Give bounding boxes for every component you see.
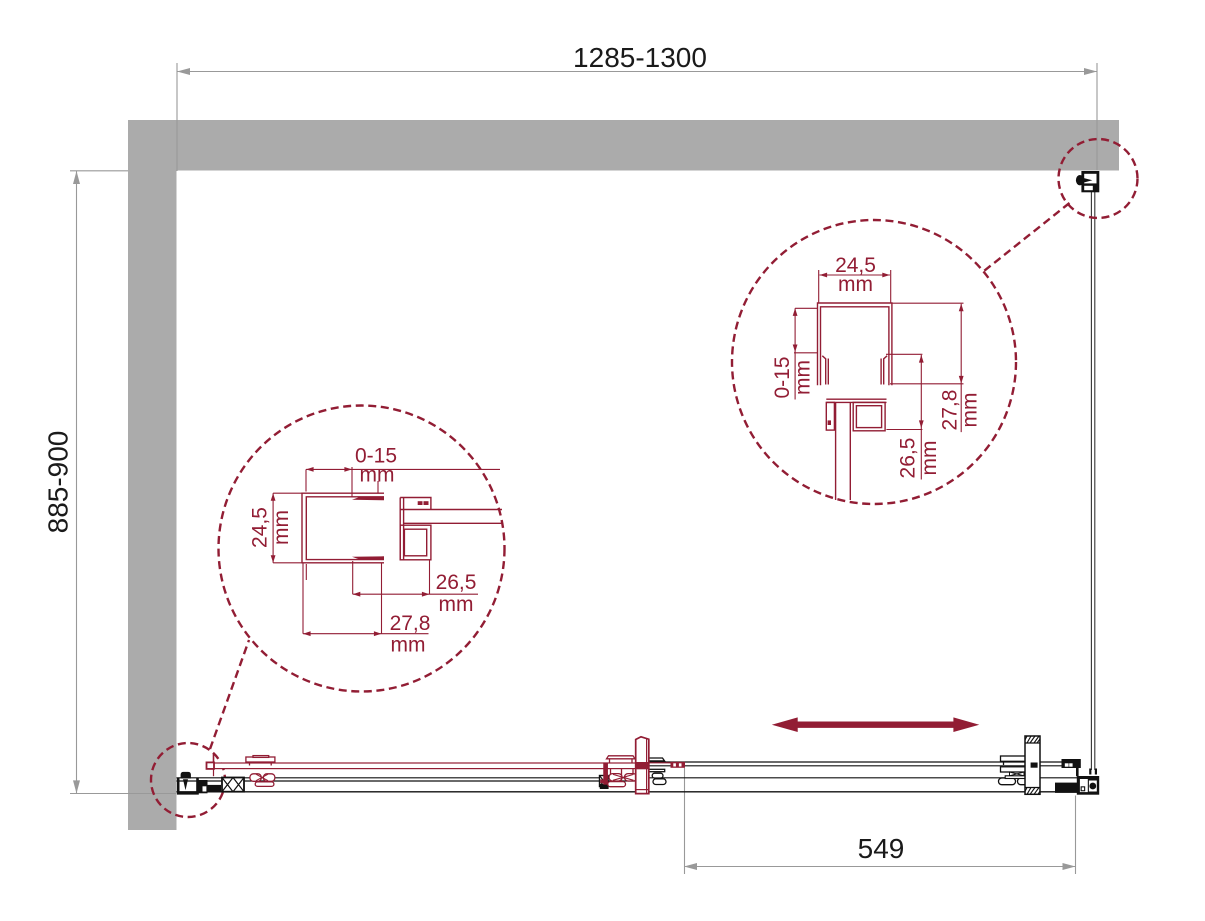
svg-text:26,5: 26,5 bbox=[897, 438, 920, 479]
svg-text:mm: mm bbox=[792, 360, 815, 395]
svg-text:mm: mm bbox=[270, 510, 293, 545]
svg-text:mm: mm bbox=[439, 593, 474, 616]
svg-text:24,5: 24,5 bbox=[249, 507, 272, 548]
svg-text:mm: mm bbox=[838, 273, 873, 296]
svg-text:mm: mm bbox=[959, 393, 982, 428]
svg-text:549: 549 bbox=[858, 833, 905, 864]
svg-text:26,5: 26,5 bbox=[436, 571, 477, 594]
svg-text:1285-1300: 1285-1300 bbox=[573, 42, 707, 73]
svg-text:885-900: 885-900 bbox=[43, 431, 74, 534]
svg-text:27,8: 27,8 bbox=[390, 612, 431, 635]
svg-text:mm: mm bbox=[360, 464, 395, 487]
svg-text:mm: mm bbox=[918, 441, 941, 476]
svg-text:mm: mm bbox=[391, 634, 426, 657]
